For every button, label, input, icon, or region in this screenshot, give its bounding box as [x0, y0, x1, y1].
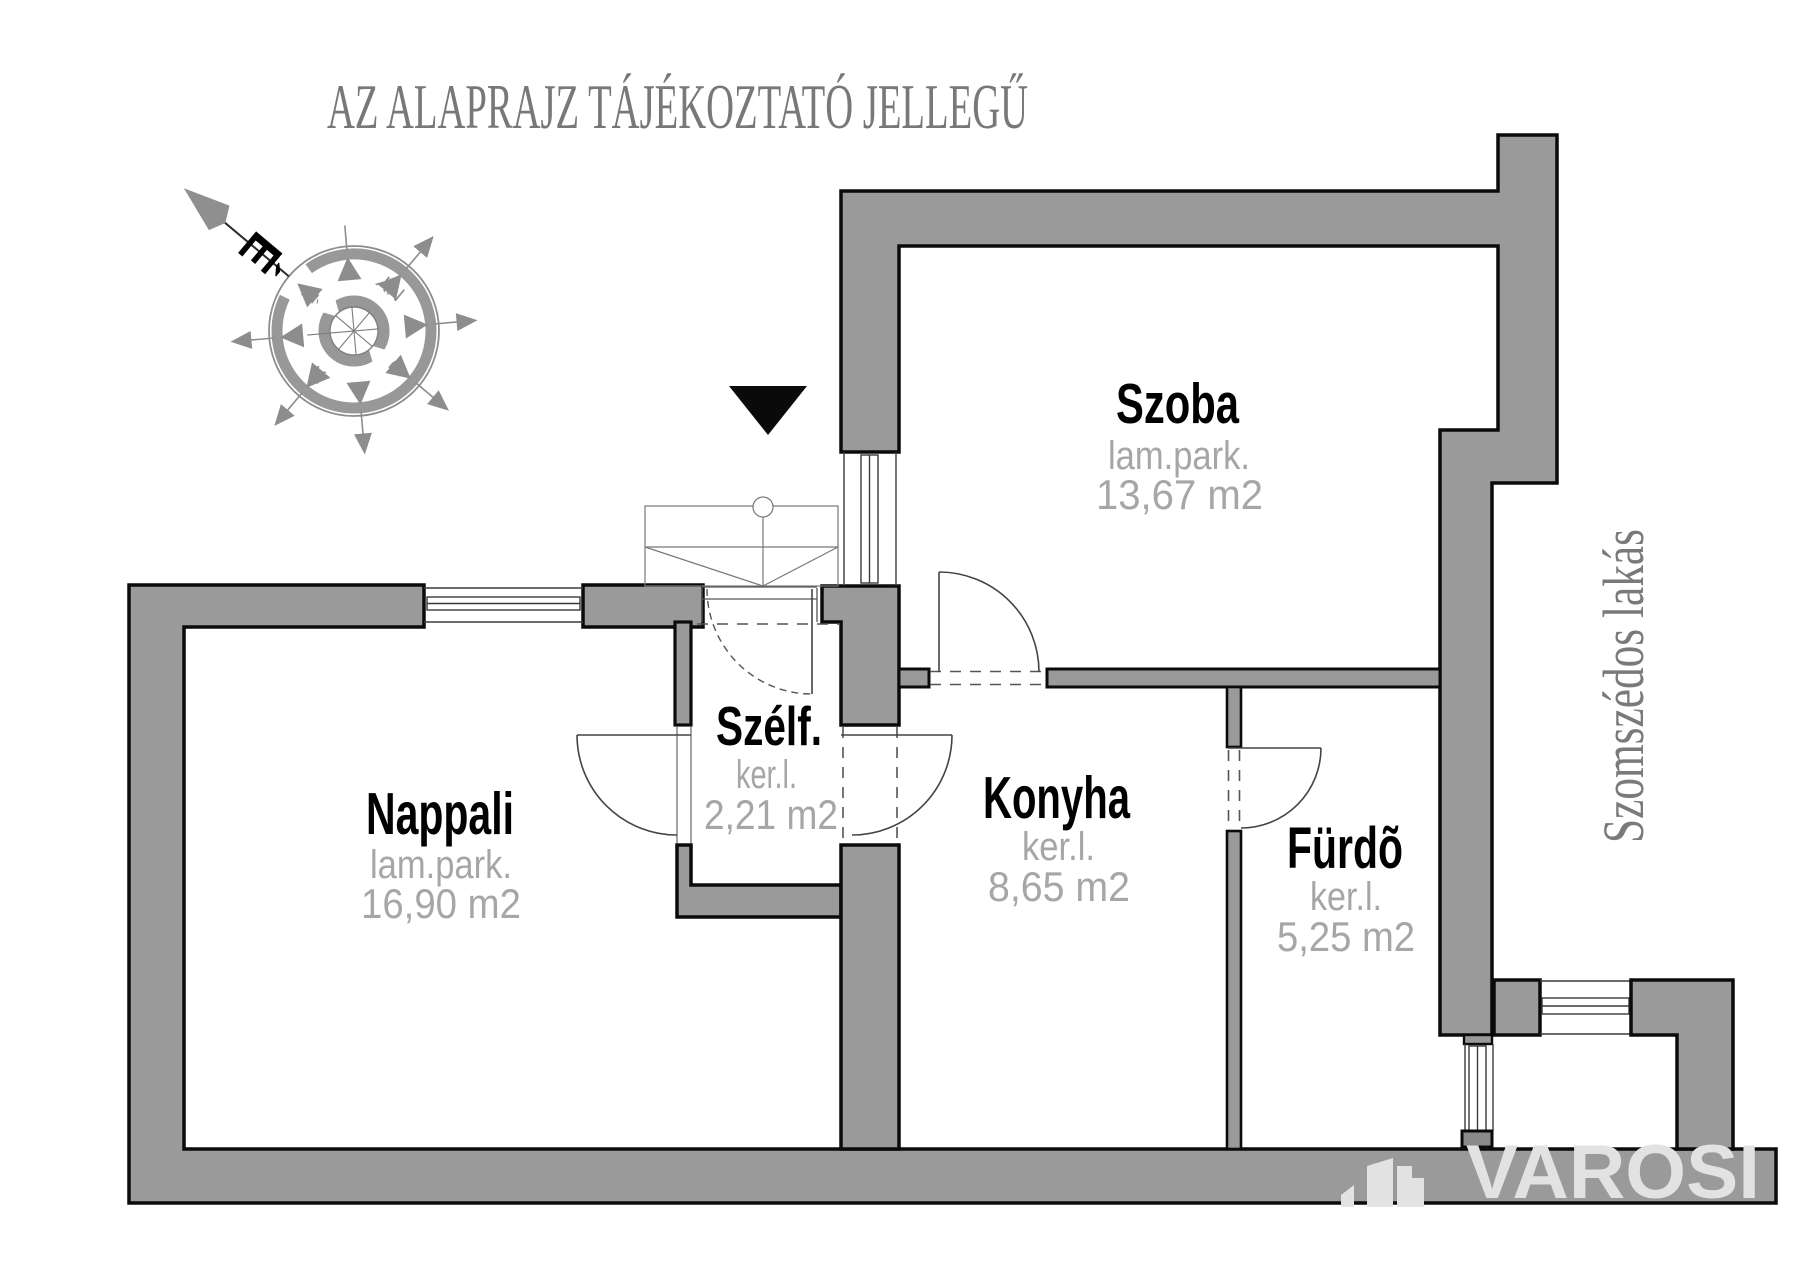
svg-text:Nappali: Nappali [366, 781, 514, 847]
svg-text:AZ ALAPRAJZ TÁJÉKOZTATÓ JELLE: AZ ALAPRAJZ TÁJÉKOZTATÓ JELLEGŰ [327, 72, 1028, 142]
svg-text:Konyha: Konyha [983, 765, 1131, 831]
svg-text:VAROSI: VAROSI [1466, 1130, 1760, 1215]
svg-text:2,21 m2: 2,21 m2 [704, 791, 838, 838]
svg-text:Szomszédos lakás: Szomszédos lakás [1591, 529, 1656, 843]
svg-text:5,25 m2: 5,25 m2 [1277, 913, 1415, 960]
svg-text:Szoba: Szoba [1116, 372, 1240, 436]
svg-text:Szélf.: Szélf. [716, 695, 822, 757]
svg-text:8,65 m2: 8,65 m2 [988, 863, 1130, 910]
svg-text:16,90 m2: 16,90 m2 [361, 880, 521, 927]
svg-text:Fürdõ: Fürdõ [1287, 816, 1403, 881]
svg-text:13,67 m2: 13,67 m2 [1096, 471, 1263, 518]
